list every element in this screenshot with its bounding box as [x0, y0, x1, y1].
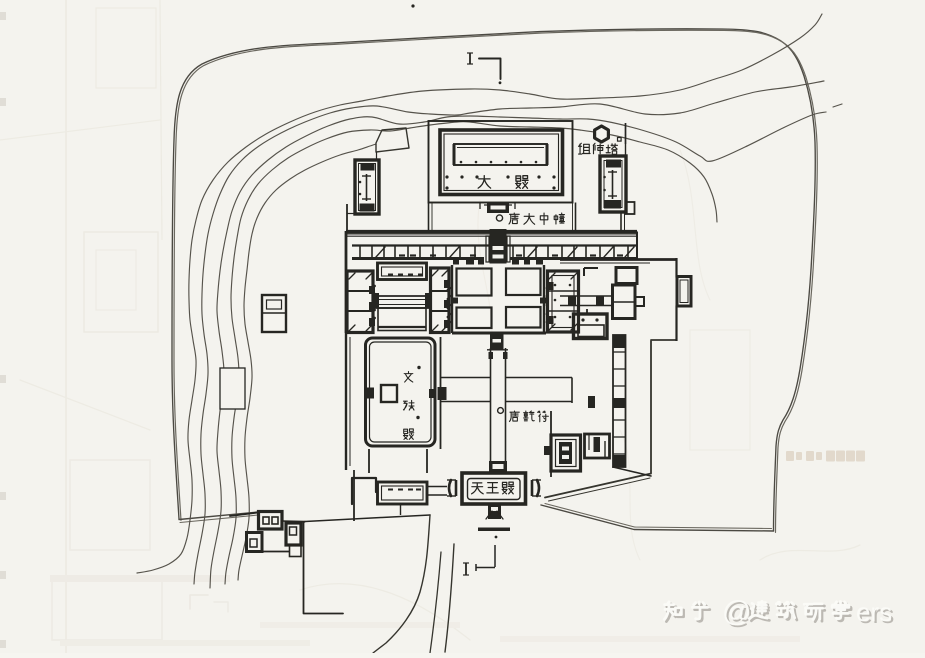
svg-text:ers: ers — [856, 597, 892, 627]
svg-text:@: @ — [722, 596, 751, 628]
